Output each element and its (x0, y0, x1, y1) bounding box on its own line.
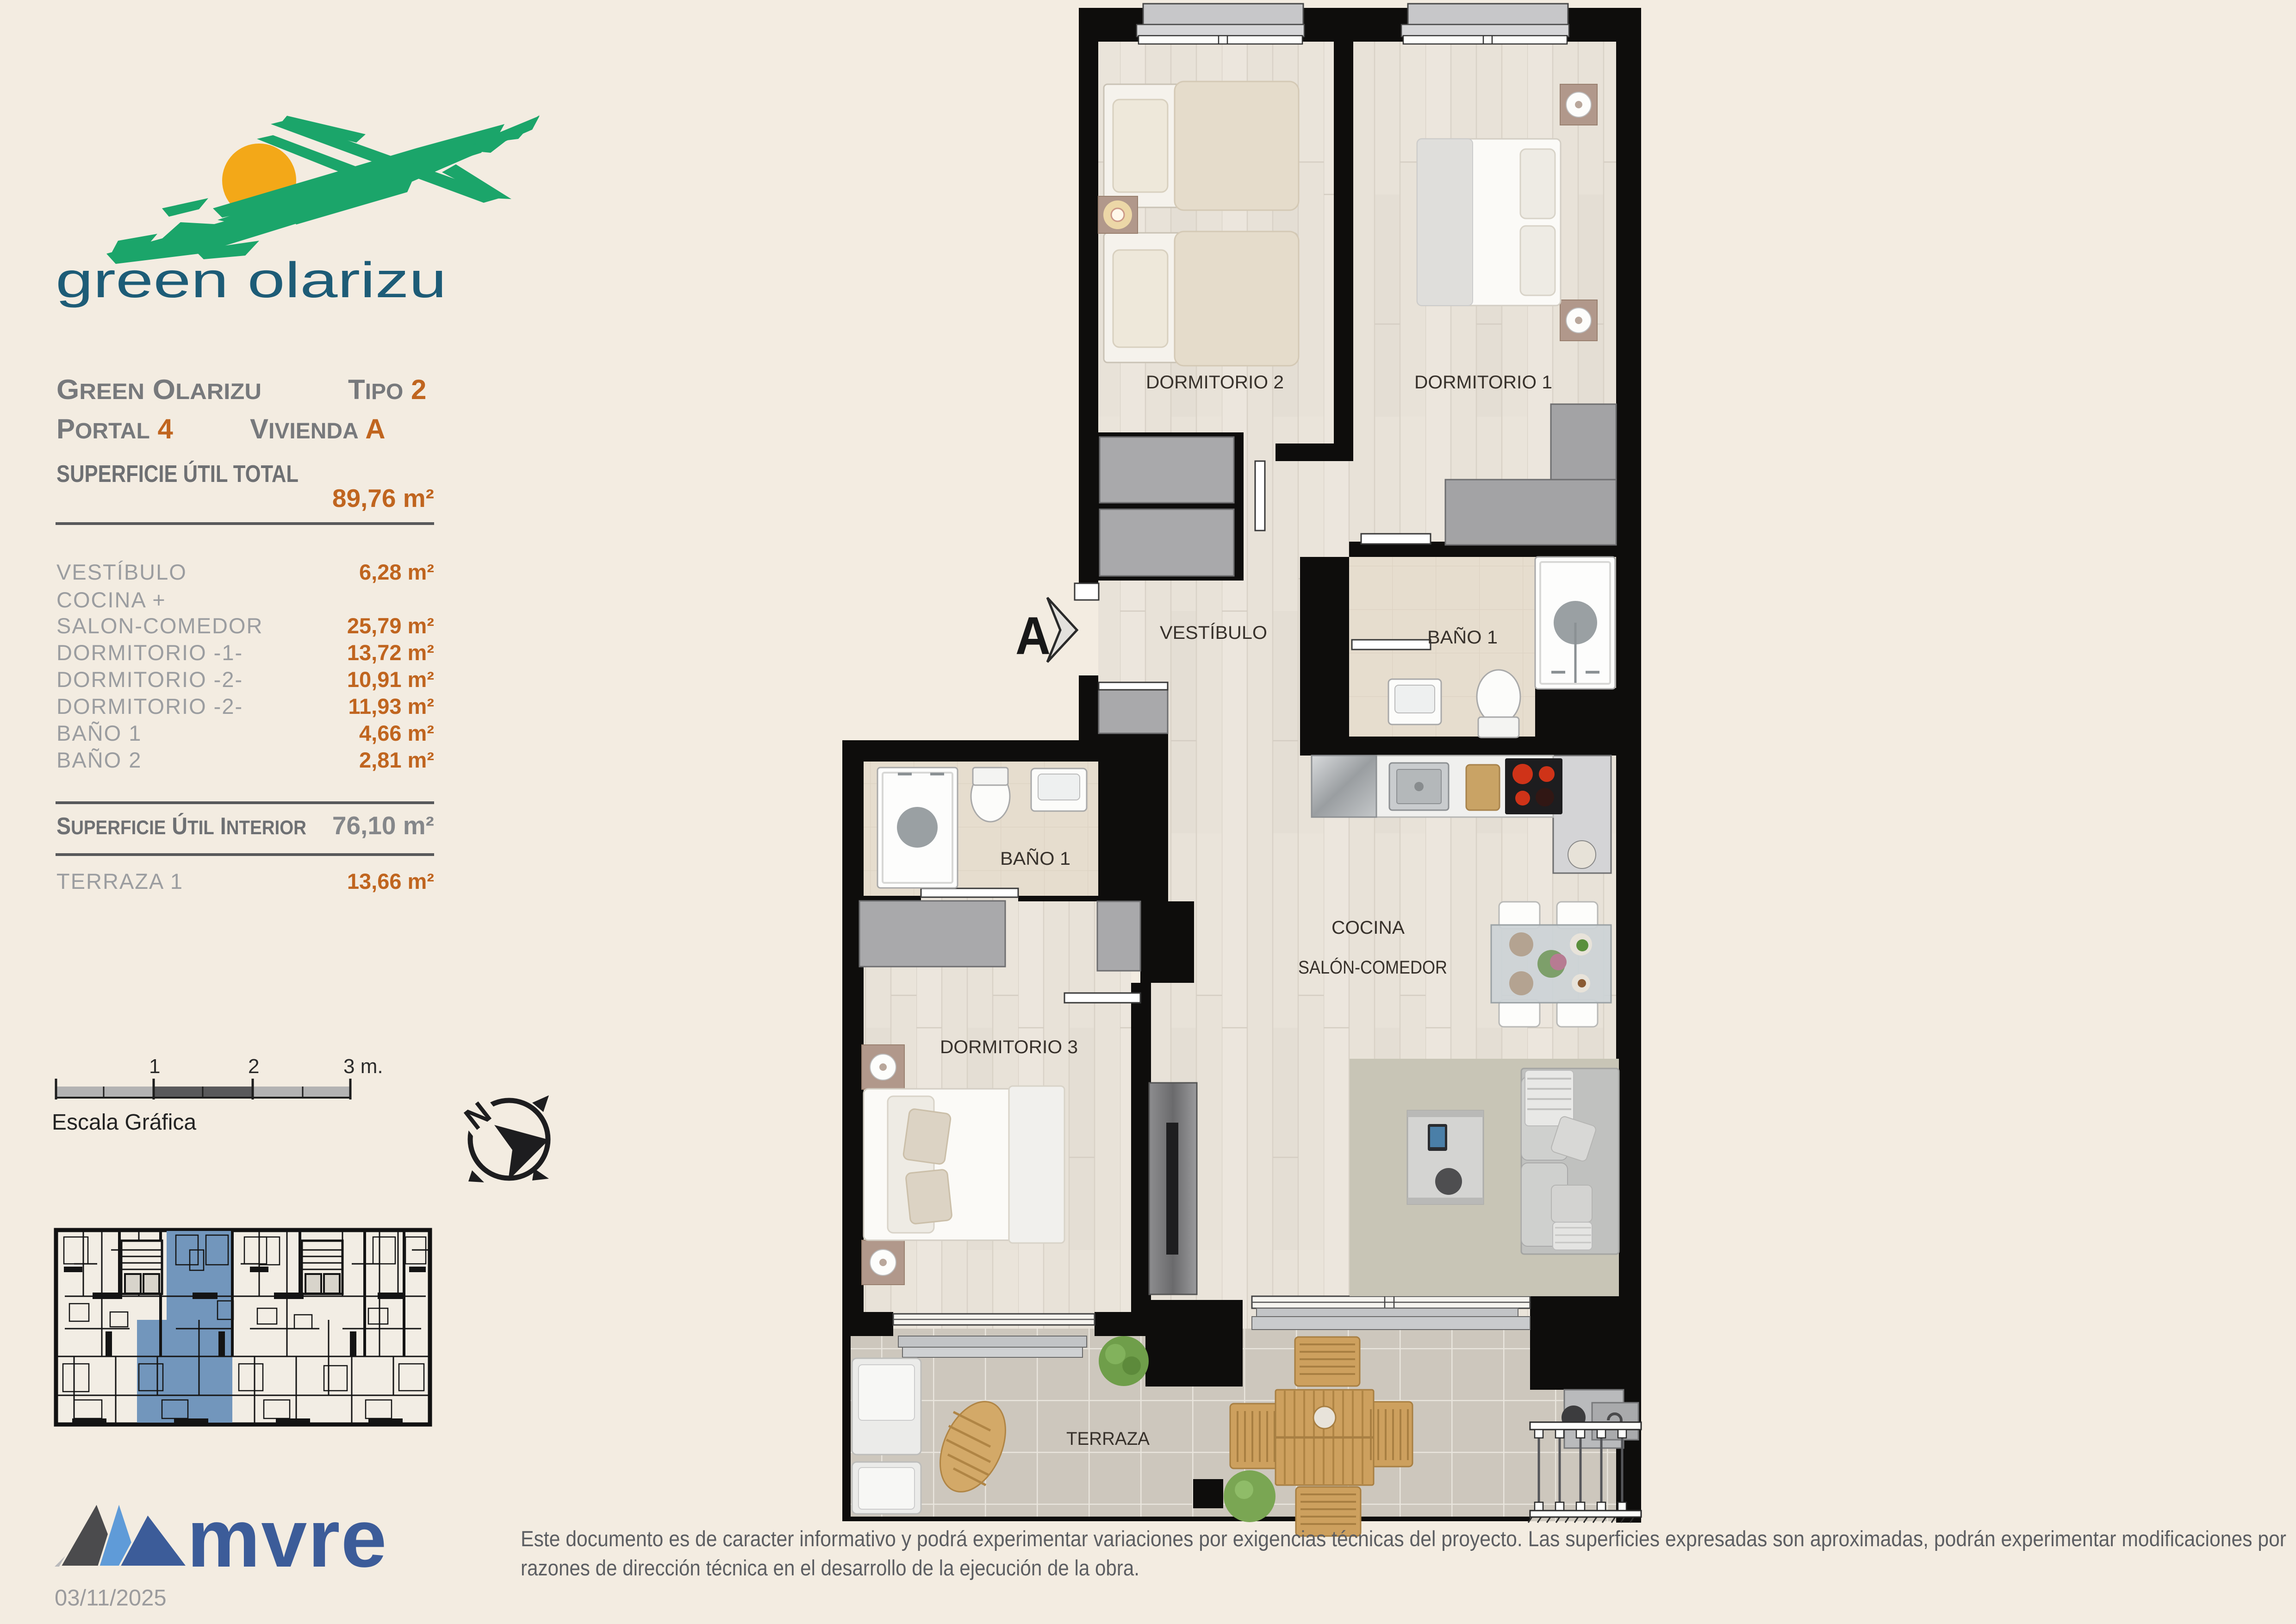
svg-text:BAÑO 1: BAÑO 1 (1000, 848, 1070, 869)
svg-text:DORMITORIO 1: DORMITORIO 1 (1414, 372, 1552, 393)
svg-text:VESTÍBULO: VESTÍBULO (1160, 622, 1267, 643)
svg-text:Escala Gráfica: Escala Gráfica (52, 1110, 196, 1135)
svg-text:razones de dirección técnica e: razones de dirección técnica en el desar… (521, 1555, 1139, 1580)
svg-text:SUPERFICIE ÚTIL TOTAL: SUPERFICIE ÚTIL TOTAL (56, 461, 299, 487)
svg-text:COCINA +: COCINA + (56, 587, 166, 612)
svg-text:SUPERFICIE ÚTIL INTERIOR: SUPERFICIE ÚTIL INTERIOR (56, 813, 306, 840)
svg-text:BAÑO 2: BAÑO 2 (56, 748, 142, 772)
svg-text:COCINA: COCINA (1332, 918, 1405, 938)
svg-text:4,66 m²: 4,66 m² (359, 721, 434, 745)
svg-text:TERRAZA 1: TERRAZA 1 (56, 869, 183, 893)
svg-text:VESTÍBULO: VESTÍBULO (56, 560, 187, 584)
svg-text:DORMITORIO 3: DORMITORIO 3 (940, 1037, 1078, 1057)
svg-text:TERRAZA: TERRAZA (1066, 1429, 1150, 1449)
svg-text:03/11/2025: 03/11/2025 (55, 1586, 167, 1611)
svg-text:2: 2 (248, 1055, 259, 1078)
svg-text:mvre: mvre (187, 1492, 388, 1584)
svg-text:6,28 m²: 6,28 m² (359, 560, 434, 584)
svg-text:25,79 m²: 25,79 m² (347, 613, 434, 638)
svg-text:BAÑO 1: BAÑO 1 (56, 721, 142, 745)
svg-text:89,76 m²: 89,76 m² (332, 484, 434, 512)
svg-text:DORMITORIO -2-: DORMITORIO -2- (56, 694, 243, 718)
svg-text:Este documento es de caracter: Este documento es de caracter informativ… (521, 1526, 2286, 1551)
svg-text:DORMITORIO -1-: DORMITORIO -1- (56, 640, 243, 665)
svg-text:SALÓN-COMEDOR: SALÓN-COMEDOR (1298, 957, 1447, 978)
svg-text:13,72 m²: 13,72 m² (347, 640, 434, 665)
svg-text:BAÑO 1: BAÑO 1 (1427, 627, 1498, 648)
svg-text:green olarizu: green olarizu (56, 252, 447, 308)
svg-text:10,91 m²: 10,91 m² (347, 667, 434, 692)
svg-text:11,93 m²: 11,93 m² (348, 694, 434, 718)
svg-text:13,66 m²: 13,66 m² (347, 869, 434, 893)
svg-text:76,10 m²: 76,10 m² (332, 811, 434, 840)
svg-text:A: A (1015, 606, 1051, 666)
svg-text:DORMITORIO -2-: DORMITORIO -2- (56, 667, 243, 692)
svg-text:DORMITORIO 2: DORMITORIO 2 (1146, 372, 1284, 393)
svg-text:2,81 m²: 2,81 m² (359, 748, 434, 772)
svg-text:3 m.: 3 m. (343, 1055, 383, 1078)
svg-text:SALON-COMEDOR: SALON-COMEDOR (56, 613, 263, 638)
svg-text:1: 1 (149, 1055, 160, 1078)
